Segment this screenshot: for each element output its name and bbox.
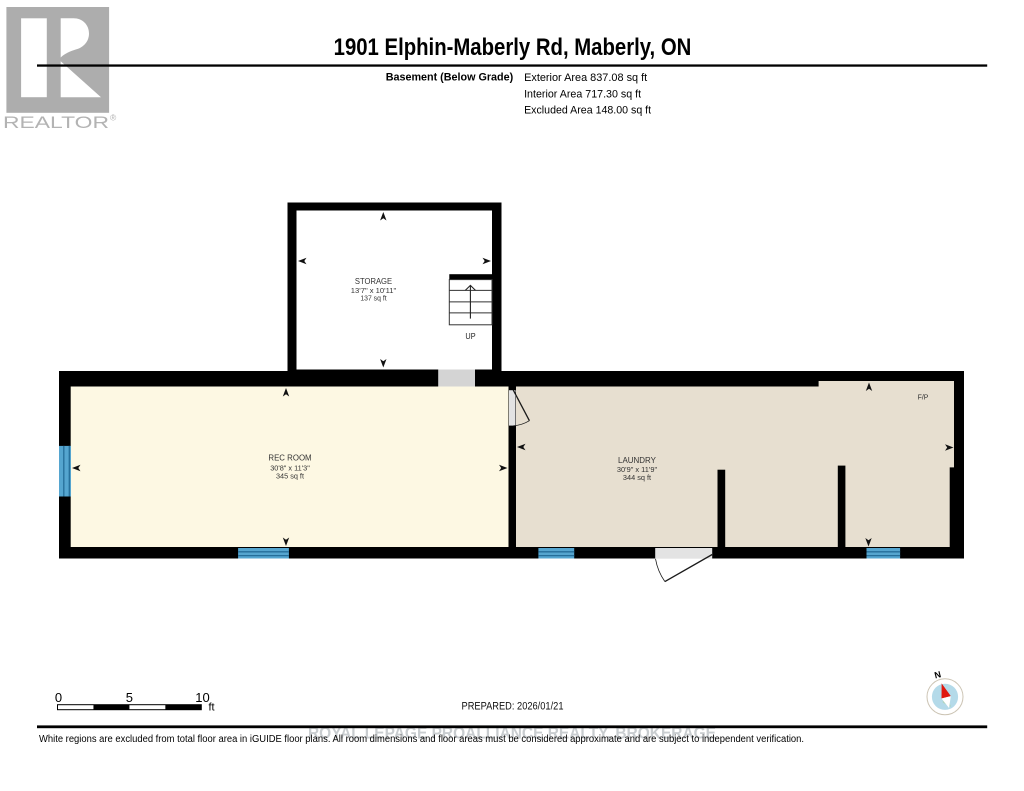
- svg-text:STORAGE: STORAGE: [355, 276, 392, 286]
- svg-text:344 sq ft: 344 sq ft: [623, 473, 652, 482]
- svg-text:UP: UP: [465, 331, 475, 341]
- svg-text:Interior Area 717.30 sq ft: Interior Area 717.30 sq ft: [524, 88, 641, 100]
- svg-text:Basement (Below Grade): Basement (Below Grade): [386, 72, 514, 84]
- svg-text:White regions are excluded fro: White regions are excluded from total fl…: [39, 734, 804, 745]
- svg-text:REALTOR: REALTOR: [3, 113, 109, 132]
- svg-text:1901 Elphin-Maberly Rd, Maberl: 1901 Elphin-Maberly Rd, Maberly, ON: [334, 34, 692, 61]
- svg-text:LAUNDRY: LAUNDRY: [618, 455, 656, 465]
- svg-text:345 sq ft: 345 sq ft: [276, 472, 305, 481]
- svg-text:137 sq ft: 137 sq ft: [360, 294, 387, 303]
- svg-text:F/P: F/P: [918, 393, 929, 402]
- svg-text:REC ROOM: REC ROOM: [268, 453, 311, 463]
- svg-text:®: ®: [110, 113, 117, 123]
- svg-text:PREPARED: 2026/01/21: PREPARED: 2026/01/21: [462, 701, 564, 713]
- svg-text:5: 5: [126, 690, 133, 705]
- svg-text:0: 0: [55, 690, 62, 705]
- svg-text:N: N: [933, 669, 942, 680]
- svg-text:Exterior Area 837.08 sq ft: Exterior Area 837.08 sq ft: [524, 72, 647, 84]
- svg-text:Excluded Area 148.00 sq ft: Excluded Area 148.00 sq ft: [524, 105, 651, 117]
- svg-text:ft: ft: [209, 702, 215, 714]
